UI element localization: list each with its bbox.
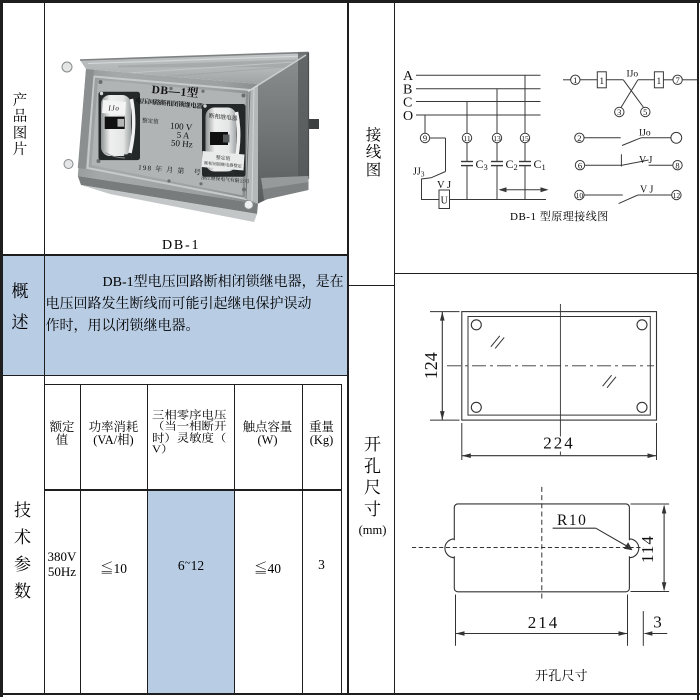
svg-text:13: 13 xyxy=(493,134,501,143)
svg-text:7: 7 xyxy=(675,75,679,85)
svg-text:R10: R10 xyxy=(557,512,587,529)
svg-text:1: 1 xyxy=(657,77,662,87)
svg-text:214: 214 xyxy=(528,613,560,632)
svg-text:C1: C1 xyxy=(534,157,546,172)
svg-text:5: 5 xyxy=(643,107,647,117)
svg-text:1: 1 xyxy=(599,77,604,87)
svg-text:2: 2 xyxy=(577,133,581,143)
svg-text:U: U xyxy=(441,196,449,207)
svg-text:10: 10 xyxy=(576,191,584,200)
svg-text:V J: V J xyxy=(640,185,654,196)
svg-text:C2: C2 xyxy=(506,157,518,172)
svg-text:IJo: IJo xyxy=(639,129,651,139)
svg-text:IJo: IJo xyxy=(627,70,639,80)
svg-text:12: 12 xyxy=(673,191,681,200)
svg-text:6: 6 xyxy=(578,160,582,170)
svg-text:IJo: IJo xyxy=(107,105,119,113)
svg-text:114: 114 xyxy=(638,535,657,563)
svg-text:3: 3 xyxy=(653,613,662,632)
svg-text:JJ3: JJ3 xyxy=(413,167,425,179)
svg-text:224: 224 xyxy=(543,434,575,453)
svg-text:9: 9 xyxy=(423,133,427,143)
svg-text:O: O xyxy=(403,109,413,124)
svg-text:11: 11 xyxy=(463,134,471,143)
svg-text:V J: V J xyxy=(639,155,653,166)
svg-text:124: 124 xyxy=(421,352,441,379)
svg-text:3: 3 xyxy=(617,107,621,117)
svg-text:1: 1 xyxy=(573,75,577,85)
svg-text:8: 8 xyxy=(675,160,679,170)
svg-text:50 Hz: 50 Hz xyxy=(171,138,194,150)
svg-text:V J: V J xyxy=(437,180,451,191)
svg-text:15: 15 xyxy=(521,134,529,143)
svg-text:C3: C3 xyxy=(476,157,488,172)
